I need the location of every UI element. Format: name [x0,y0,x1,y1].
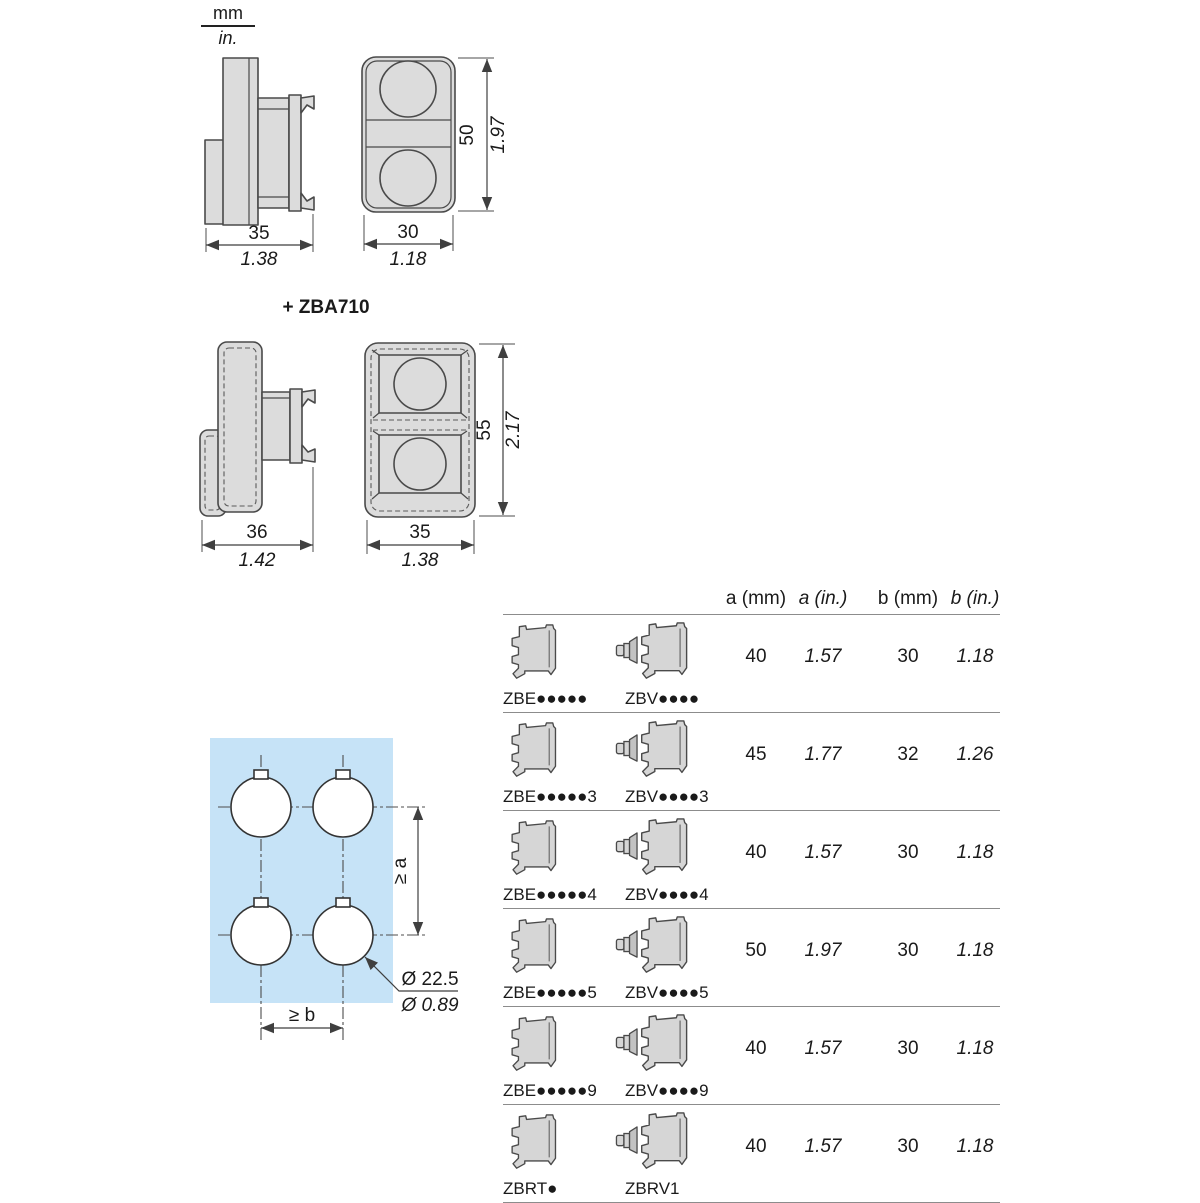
value-a-in: 1.57 [805,1038,842,1060]
value-a-in: 1.57 [805,1136,842,1158]
model-reference: ZBV●●●●9 [625,1081,709,1101]
col-header-a-mm: a (mm) [726,588,786,610]
model-reference: ZBE●●●●● [503,689,587,709]
contact-block-icon [505,820,559,876]
dim-d1-side-width-mm: 35 [248,223,269,244]
value-b-mm: 32 [897,744,918,766]
contact-block-lamp-icon [615,1014,689,1072]
dim-hole-spacing-horizontal: ≥ b [261,1005,343,1028]
value-b-in: 1.18 [957,940,994,962]
contact-block-dimension-table: a (mm) a (in.) b (mm) b (in.) ZBE●●●●● Z… [503,585,1000,1203]
dim-spacing-b-label: ≥ b [289,1005,315,1026]
contact-block-icon [505,918,559,974]
contact-block-lamp-icon [615,916,689,974]
value-b-in: 1.18 [957,842,994,864]
value-b-mm: 30 [897,646,918,668]
dim-d2-front-width-in: 1.38 [402,550,439,571]
value-b-mm: 30 [897,1136,918,1158]
model-reference: ZBE●●●●●9 [503,1081,597,1101]
panel-drilling-diagram: ≥ a ≥ b Ø 22.5 Ø 0.89 [190,725,480,1055]
units-in-label: in. [201,27,255,49]
table-header: a (mm) a (in.) b (mm) b (in.) [503,585,1000,614]
units-legend: mm in. [201,3,255,49]
contact-block-lamp-icon [615,622,689,680]
dim-d1-front-height-in: 1.97 [488,115,509,153]
model-reference: ZBRV1 [625,1179,680,1199]
value-a-in: 1.57 [805,646,842,668]
value-b-in: 1.18 [957,646,994,668]
dim-spacing-a-label: ≥ a [390,857,411,884]
hole-diameter-mm: Ø 22.5 [401,969,458,990]
zba710-front-view [365,343,475,517]
dim-d2-front-width: 35 1.38 [367,520,474,571]
value-b-in: 1.18 [957,1136,994,1158]
dim-d2-front-width-mm: 35 [409,522,430,543]
col-header-b-in: b (in.) [951,588,1000,610]
pushbutton-dimension-drawing: 35 1.38 30 1.18 50 1.97 [185,48,520,278]
value-a-mm: 40 [745,1038,766,1060]
zba710-side-view [200,342,315,516]
model-reference: ZBRT● [503,1179,557,1199]
dim-d1-front-height-mm: 50 [457,124,478,145]
value-b-mm: 30 [897,842,918,864]
model-reference: ZBV●●●●5 [625,983,709,1003]
dim-d1-front-width-mm: 30 [397,222,418,243]
contact-block-icon [505,624,559,680]
table-row: ZBE●●●●●9 ZBV●●●●9 40 1.57 30 1.18 [503,1006,1000,1104]
model-reference: ZBV●●●●4 [625,885,709,905]
table-row: ZBRT● ZBRV1 40 1.57 30 1.18 [503,1104,1000,1202]
dim-d2-front-height-in: 2.17 [503,410,524,449]
dim-hole-spacing-vertical: ≥ a [390,807,418,935]
value-a-mm: 45 [745,744,766,766]
contact-block-icon [505,722,559,778]
model-reference: ZBE●●●●●4 [503,885,597,905]
value-a-in: 1.97 [805,940,842,962]
pushbutton-side-view [205,58,314,225]
dim-d2-front-height: 55 2.17 [474,344,524,516]
table-row: ZBE●●●●●5 ZBV●●●●5 50 1.97 30 1.18 [503,908,1000,1006]
contact-block-lamp-icon [615,720,689,778]
model-reference: ZBE●●●●●3 [503,787,597,807]
model-reference: ZBV●●●●3 [625,787,709,807]
contact-block-lamp-icon [615,818,689,876]
table-row: ZBE●●●●●4 ZBV●●●●4 40 1.57 30 1.18 [503,810,1000,908]
value-b-mm: 30 [897,1038,918,1060]
table-row: ZBE●●●●●3 ZBV●●●●3 45 1.77 32 1.26 [503,712,1000,810]
hole-diameter-in: Ø 0.89 [400,995,458,1016]
value-a-mm: 50 [745,940,766,962]
dim-d2-front-height-mm: 55 [474,419,495,440]
dim-d1-front-height: 50 1.97 [457,58,509,211]
contact-block-icon [505,1114,559,1170]
col-header-a-in: a (in.) [799,588,848,610]
value-b-mm: 30 [897,940,918,962]
value-a-mm: 40 [745,1136,766,1158]
value-b-in: 1.18 [957,1038,994,1060]
contact-block-icon [505,1016,559,1072]
model-reference: ZBE●●●●●5 [503,983,597,1003]
panel-area [210,738,393,1003]
pushbutton-front-view [362,57,455,212]
units-mm-label: mm [201,3,255,27]
value-a-in: 1.57 [805,842,842,864]
table-row: ZBE●●●●● ZBV●●●● 40 1.57 30 1.18 [503,614,1000,712]
model-reference: ZBV●●●● [625,689,699,709]
zba710-title: + ZBA710 [282,297,369,319]
value-a-mm: 40 [745,646,766,668]
dim-d1-front-width: 30 1.18 [364,215,453,270]
dim-d2-side-width-mm: 36 [246,522,267,543]
dim-d1-side-width-in: 1.38 [241,249,278,270]
dim-d2-side-width-in: 1.42 [239,550,276,571]
col-header-b-mm: b (mm) [878,588,938,610]
contact-block-lamp-icon [615,1112,689,1170]
value-a-mm: 40 [745,842,766,864]
value-b-in: 1.26 [957,744,994,766]
pushbutton-zba710-dimension-drawing: 36 1.42 35 1.38 55 2.17 [185,330,530,575]
value-a-in: 1.77 [805,744,842,766]
dim-d1-front-width-in: 1.18 [390,249,427,270]
